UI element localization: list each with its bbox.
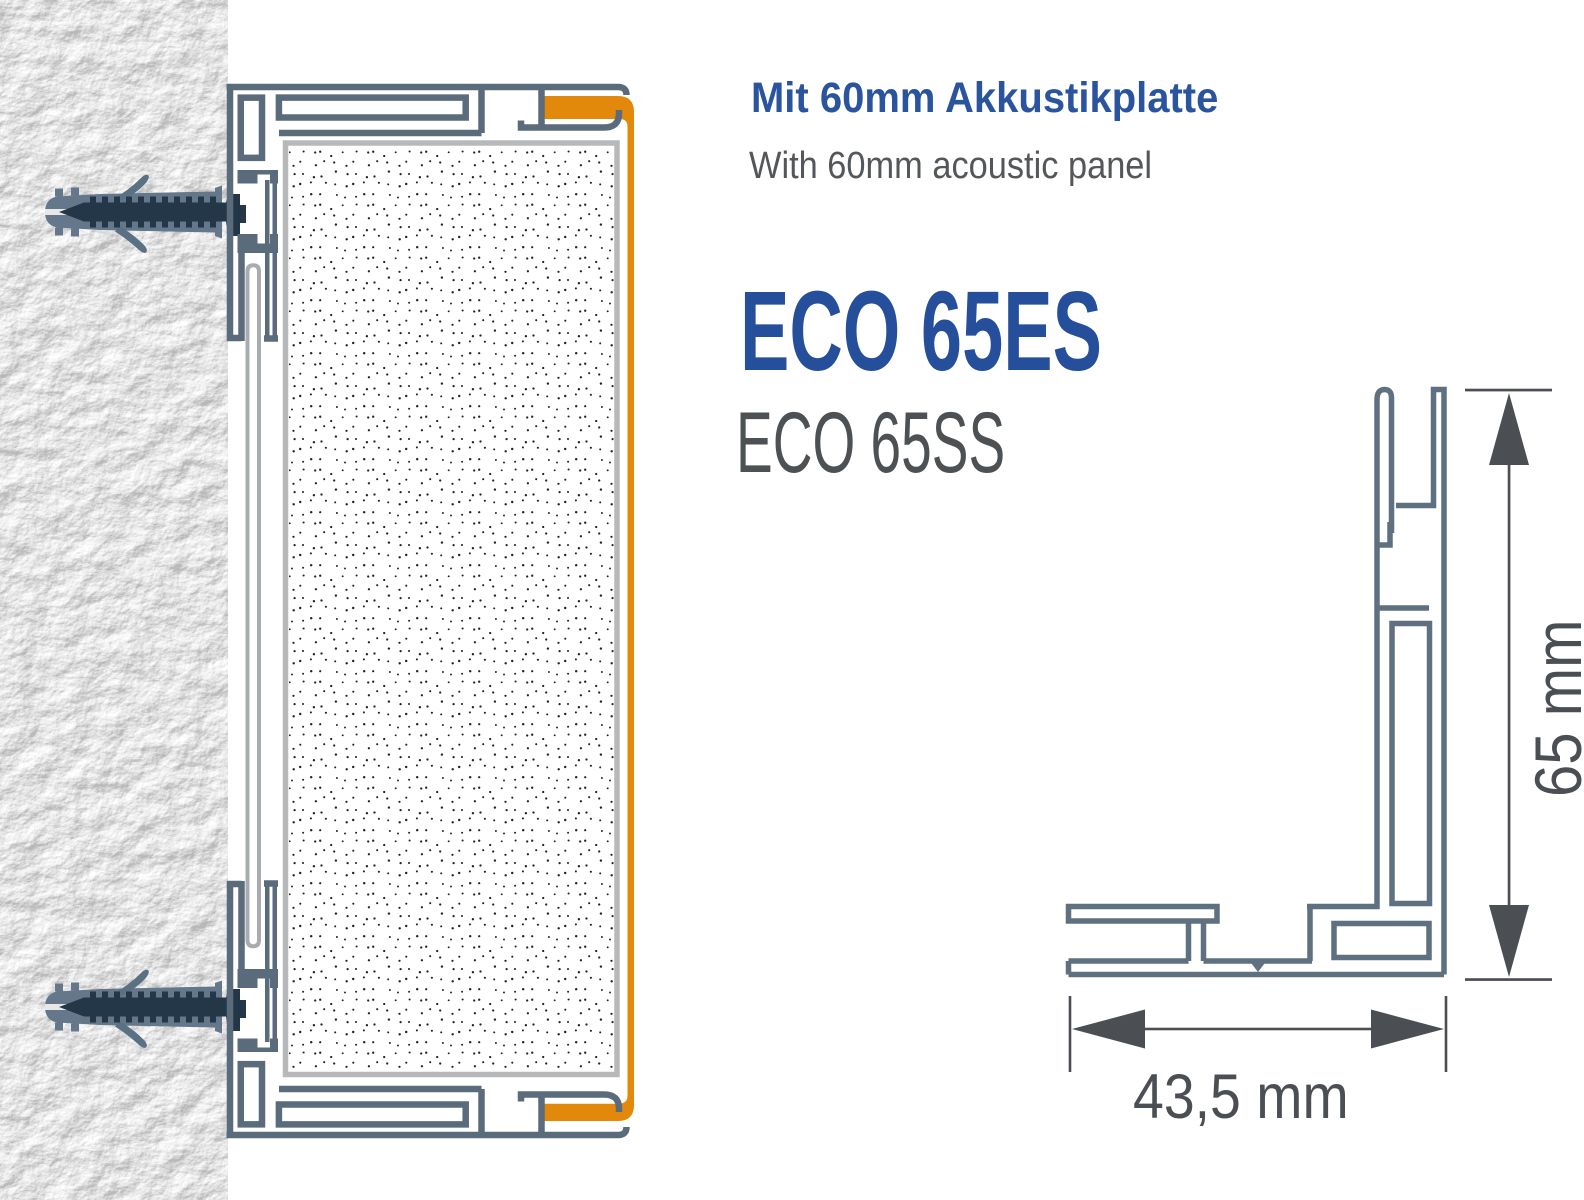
svg-text:Mit 60mm Akkustikplatte: Mit 60mm Akkustikplatte xyxy=(751,73,1218,122)
svg-text:65 mm: 65 mm xyxy=(1523,620,1584,797)
svg-text:43,5 mm: 43,5 mm xyxy=(1133,1061,1349,1132)
svg-text:ECO 65SS: ECO 65SS xyxy=(736,396,1005,491)
svg-text:ECO 65ES: ECO 65ES xyxy=(740,269,1102,394)
svg-text:With 60mm acoustic panel: With 60mm acoustic panel xyxy=(749,143,1152,186)
